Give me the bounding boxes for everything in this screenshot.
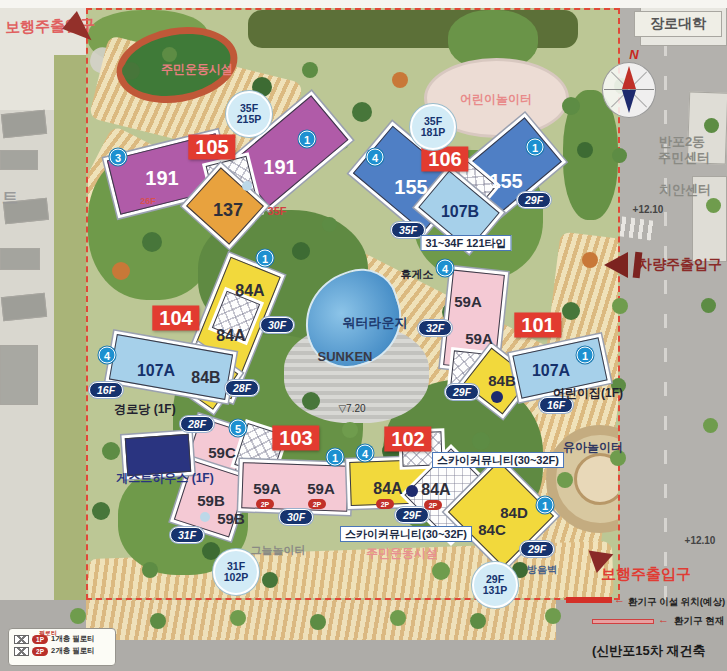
unit-label-137: 137 (213, 200, 243, 221)
type-note-106: 31~34F 121타입 (420, 235, 511, 251)
tree-icon (302, 392, 320, 410)
sky-community-note: 스카이커뮤니티(30~32F) (340, 526, 472, 542)
sports-facility-label: 주민운동시설 (366, 545, 438, 562)
tree-icon (704, 118, 719, 133)
unit-label-84d: 84D (500, 504, 528, 521)
entrance-number-badge: 1 (257, 250, 274, 267)
tree-icon (70, 608, 86, 624)
floor-badge: 29F (395, 507, 429, 523)
floors-parking-badge: 35F 181P (410, 104, 456, 150)
tree-icon (392, 72, 408, 88)
tree-icon (310, 614, 326, 630)
compass-rose: N (600, 46, 660, 122)
kids-playground-label: 어린이놀이터 (460, 91, 532, 108)
piloti-2p-badge: 2P (32, 647, 48, 656)
unit-label-59a: 59A (465, 330, 493, 347)
unit-label-84a: 84A (421, 481, 450, 499)
unit-label-107a: 107A (532, 362, 570, 380)
sports-facility-label: 주민운동시설 (161, 61, 233, 78)
unit-label-191: 191 (263, 156, 296, 179)
floor-mark-red: 26F (140, 196, 156, 206)
tree-icon (557, 472, 573, 488)
floor-badge: 29F (445, 384, 479, 400)
tree-icon (342, 422, 358, 438)
water-lounge-label: 워터라운지 (343, 314, 408, 332)
legend-row-text: 1개층 필로티 (51, 634, 95, 644)
tree-icon (122, 62, 140, 80)
adjacent-building (1, 293, 47, 321)
adjacent-building (1, 110, 47, 138)
tree-icon (322, 217, 337, 232)
tree-icon (150, 613, 166, 629)
badge-parking: 102P (224, 572, 249, 583)
unit-label-59b: 59B (197, 492, 225, 509)
tree-icon (390, 610, 406, 626)
floor-badge: 31F (170, 527, 204, 543)
unit-label-84c: 84C (478, 521, 506, 538)
adjacent-building (0, 345, 38, 405)
floors-parking-badge: 29F 131P (472, 562, 518, 608)
tree-icon (472, 432, 490, 450)
piloti-hatch-icon (14, 647, 29, 656)
piloti-badge: 2P (308, 499, 326, 509)
building-label-104: 104 (152, 306, 199, 331)
floor-badge: 29F (517, 192, 551, 208)
compass-needle-north (622, 66, 636, 89)
building-label-101: 101 (514, 313, 561, 338)
entrance-number-badge: 3 (110, 149, 127, 166)
floor-badge: 29F (520, 541, 554, 557)
floor-badge: 28F (180, 416, 214, 432)
tree-icon (142, 562, 158, 578)
legend-header: 필로티 (39, 629, 57, 638)
piloti-badge: 2P (376, 499, 394, 509)
entrance-number-badge: 4 (437, 260, 454, 277)
building-label-102: 102 (384, 427, 431, 452)
tree-icon (703, 418, 718, 433)
piloti-badge: 2P (424, 500, 442, 510)
tree-icon (612, 148, 627, 163)
core-dot (200, 512, 210, 522)
tree-icon (470, 613, 486, 629)
badge-parking: 215P (237, 114, 262, 125)
elevation-mark: +12.10 (633, 204, 664, 215)
toddler-playground-label: 유아놀이터 (563, 439, 623, 456)
vent-bar-relocated (566, 597, 612, 603)
sunken-label: SUNKEN (318, 349, 373, 364)
adjacent-building (0, 248, 40, 270)
entrance-number-badge: 1 (527, 139, 544, 156)
building-label-106: 106 (421, 147, 468, 172)
unit-label-59a: 59A (307, 480, 335, 497)
compass-north-label: N (629, 47, 638, 62)
vent-relocated-label: 환기구 이설 위치(예상) (628, 596, 725, 609)
tree-icon (562, 97, 580, 115)
unit-label-84a: 84A (373, 480, 402, 498)
entrance-number-badge: 1 (537, 497, 554, 514)
unit-label-59a: 59A (253, 480, 281, 497)
tree-icon (701, 298, 716, 313)
vent-current-label: 환기구 현재 (674, 615, 724, 628)
floor-badge: 28F (225, 380, 259, 396)
floor-badge: 16F (89, 382, 123, 398)
adjacent-building (0, 150, 38, 170)
left-hedge (54, 55, 86, 600)
floor-badge: 32F (418, 320, 452, 336)
unit-label-84b: 84B (488, 372, 516, 389)
tree-icon (230, 610, 246, 626)
core-dot (406, 485, 418, 497)
daycare-label: 어린이집(1F) (553, 385, 623, 402)
unit-label-107b: 107B (441, 203, 479, 221)
elevation-mark: ▽7.20 (338, 403, 365, 414)
entrance-number-badge: 5 (230, 420, 247, 437)
community-center-label: 주민센터 (658, 149, 710, 167)
top-margin (0, 0, 727, 8)
tree-icon (262, 572, 278, 588)
tree-icon (582, 252, 598, 268)
floor-badge: 30F (260, 317, 294, 333)
piloti-legend: 필로티 1P 1개층 필로티 2P 2개층 필로티 (8, 628, 116, 666)
sky-community-note: 스카이커뮤니티(30~32F) (432, 452, 564, 468)
tree-icon (302, 62, 318, 78)
legend-row-text: 2개층 필로티 (51, 646, 95, 656)
unit-label-155: 155 (489, 170, 522, 193)
senior-center-label: 경로당 (1F) (114, 401, 175, 418)
tree-icon (112, 262, 130, 280)
tree-icon (577, 142, 593, 158)
unit-label-107a: 107A (137, 362, 175, 380)
core-dot (242, 181, 252, 191)
compass-needle-south (622, 90, 636, 113)
elevation-mark: +12.10 (685, 535, 716, 546)
core-dot (491, 391, 503, 403)
tree-icon (612, 298, 628, 314)
tree-icon (352, 102, 372, 122)
tree-icon (102, 442, 120, 460)
shade-playground-label: 그늘놀이터 (251, 543, 306, 558)
tree-icon (432, 562, 450, 580)
vent-arrow-icon: ← (614, 593, 625, 605)
unit-label-155: 155 (394, 176, 427, 199)
entrance-number-badge: 4 (99, 347, 116, 364)
right-road-lane-line (664, 0, 667, 600)
tree-icon (92, 502, 110, 520)
entrance-number-badge: 4 (357, 445, 374, 462)
plan-title: (신반포15차 재건축 (592, 642, 705, 660)
tree-icon (142, 232, 162, 252)
unit-label-59c: 59C (208, 444, 236, 461)
unit-label-59a: 59A (454, 293, 482, 310)
site-plan-map: 191 191 137 155 155 107B 84A 84A 84B 107… (0, 0, 727, 671)
building-label-103: 103 (272, 426, 319, 451)
entrance-arrow-icon (604, 252, 628, 278)
badge-parking: 131P (483, 585, 508, 596)
entrance-number-badge: 4 (367, 149, 384, 166)
soundproof-wall-label: 방음벽 (527, 563, 557, 577)
tree-icon (706, 198, 721, 213)
tree-icon (545, 608, 561, 624)
vent-bar-current (592, 619, 654, 624)
vehicle-entrance-label: 차량주출입구 (638, 256, 722, 274)
police-center-label: 치안센터 (659, 181, 711, 199)
building-label-105: 105 (188, 135, 235, 160)
piloti-badge: 2P (256, 499, 274, 509)
rest-area-label: 휴게소 (401, 267, 434, 282)
badge-parking: 181P (421, 127, 446, 138)
floor-badge: 30F (279, 509, 313, 525)
entrance-number-badge: 1 (327, 449, 344, 466)
tree-icon (562, 302, 580, 320)
unit-label-84a: 84A (216, 327, 245, 345)
entrance-number-badge: 1 (299, 131, 316, 148)
guesthouse-label: 게스트하우스 (1F) (116, 470, 213, 487)
adjacent-apartment-label: 트 (2, 188, 18, 209)
unit-label-191: 191 (145, 167, 178, 190)
floors-parking-badge: 35F 215P (226, 91, 272, 137)
tree-icon (292, 242, 310, 260)
unit-label-59b: 59B (217, 510, 245, 527)
entrance-number-badge: 1 (577, 347, 594, 364)
pedestrian-entrance-label-bottom: 보행주출입구 (601, 565, 691, 584)
unit-label-84b: 84B (191, 369, 220, 387)
legend-row: 2P 2개층 필로티 (14, 646, 111, 656)
legend-row: 1P 1개층 필로티 (14, 634, 111, 644)
floor-mark-red: 35F (268, 205, 287, 217)
vent-arrow-icon: ← (658, 613, 669, 625)
piloti-hatch-icon (14, 635, 29, 644)
university-label: 장로대학 (650, 15, 706, 33)
unit-label-84a: 84A (235, 282, 264, 300)
